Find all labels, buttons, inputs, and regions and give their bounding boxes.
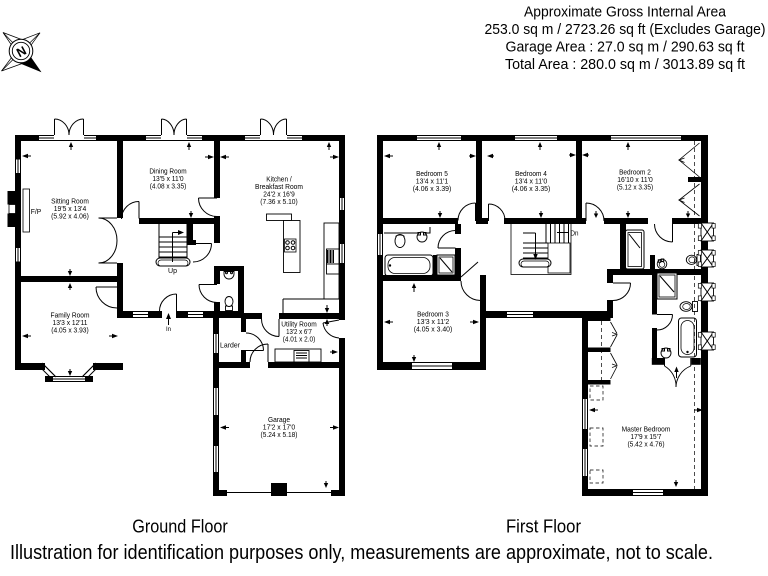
svg-text:Total Area : 280.0 sq m / 3013: Total Area : 280.0 sq m / 3013.89 sq ft	[505, 56, 746, 73]
svg-text:(5.24 x 5.18): (5.24 x 5.18)	[261, 430, 298, 439]
svg-text:Ground Floor: Ground Floor	[132, 516, 228, 537]
svg-text:Approximate Gross Internal Are: Approximate Gross Internal Area	[524, 4, 727, 21]
svg-text:Garage Area : 27.0 sq m / 290.: Garage Area : 27.0 sq m / 290.63 sq ft	[506, 39, 746, 56]
svg-text:(5.42 x 4.76): (5.42 x 4.76)	[627, 440, 665, 449]
svg-text:First Floor: First Floor	[506, 516, 581, 537]
svg-text:Up: Up	[168, 268, 177, 275]
svg-text:(4.08 x 3.35): (4.08 x 3.35)	[150, 182, 187, 191]
svg-text:Larder: Larder	[220, 341, 240, 350]
svg-text:Dn: Dn	[571, 231, 579, 238]
svg-text:(4.05 x 3.40): (4.05 x 3.40)	[414, 325, 453, 334]
svg-text:(4.06 x 3.39): (4.06 x 3.39)	[413, 184, 452, 193]
svg-text:In: In	[166, 327, 171, 333]
svg-text:Illustration for identificatio: Illustration for identification purposes…	[10, 542, 713, 564]
svg-text:(4.01 x 2.0): (4.01 x 2.0)	[283, 335, 316, 344]
svg-text:(5.12 x 3.35): (5.12 x 3.35)	[617, 183, 654, 192]
svg-text:(7.36 x 5.10): (7.36 x 5.10)	[260, 197, 298, 206]
svg-text:(4.06 x 3.35): (4.06 x 3.35)	[512, 184, 551, 193]
svg-text:F/P: F/P	[31, 207, 42, 216]
svg-text:(5.92 x 4.06): (5.92 x 4.06)	[51, 212, 89, 221]
svg-text:253.0 sq m / 2723.26 sq ft (Ex: 253.0 sq m / 2723.26 sq ft (Excludes Gar…	[485, 21, 766, 38]
svg-text:(4.05 x 3.93): (4.05 x 3.93)	[51, 326, 89, 335]
